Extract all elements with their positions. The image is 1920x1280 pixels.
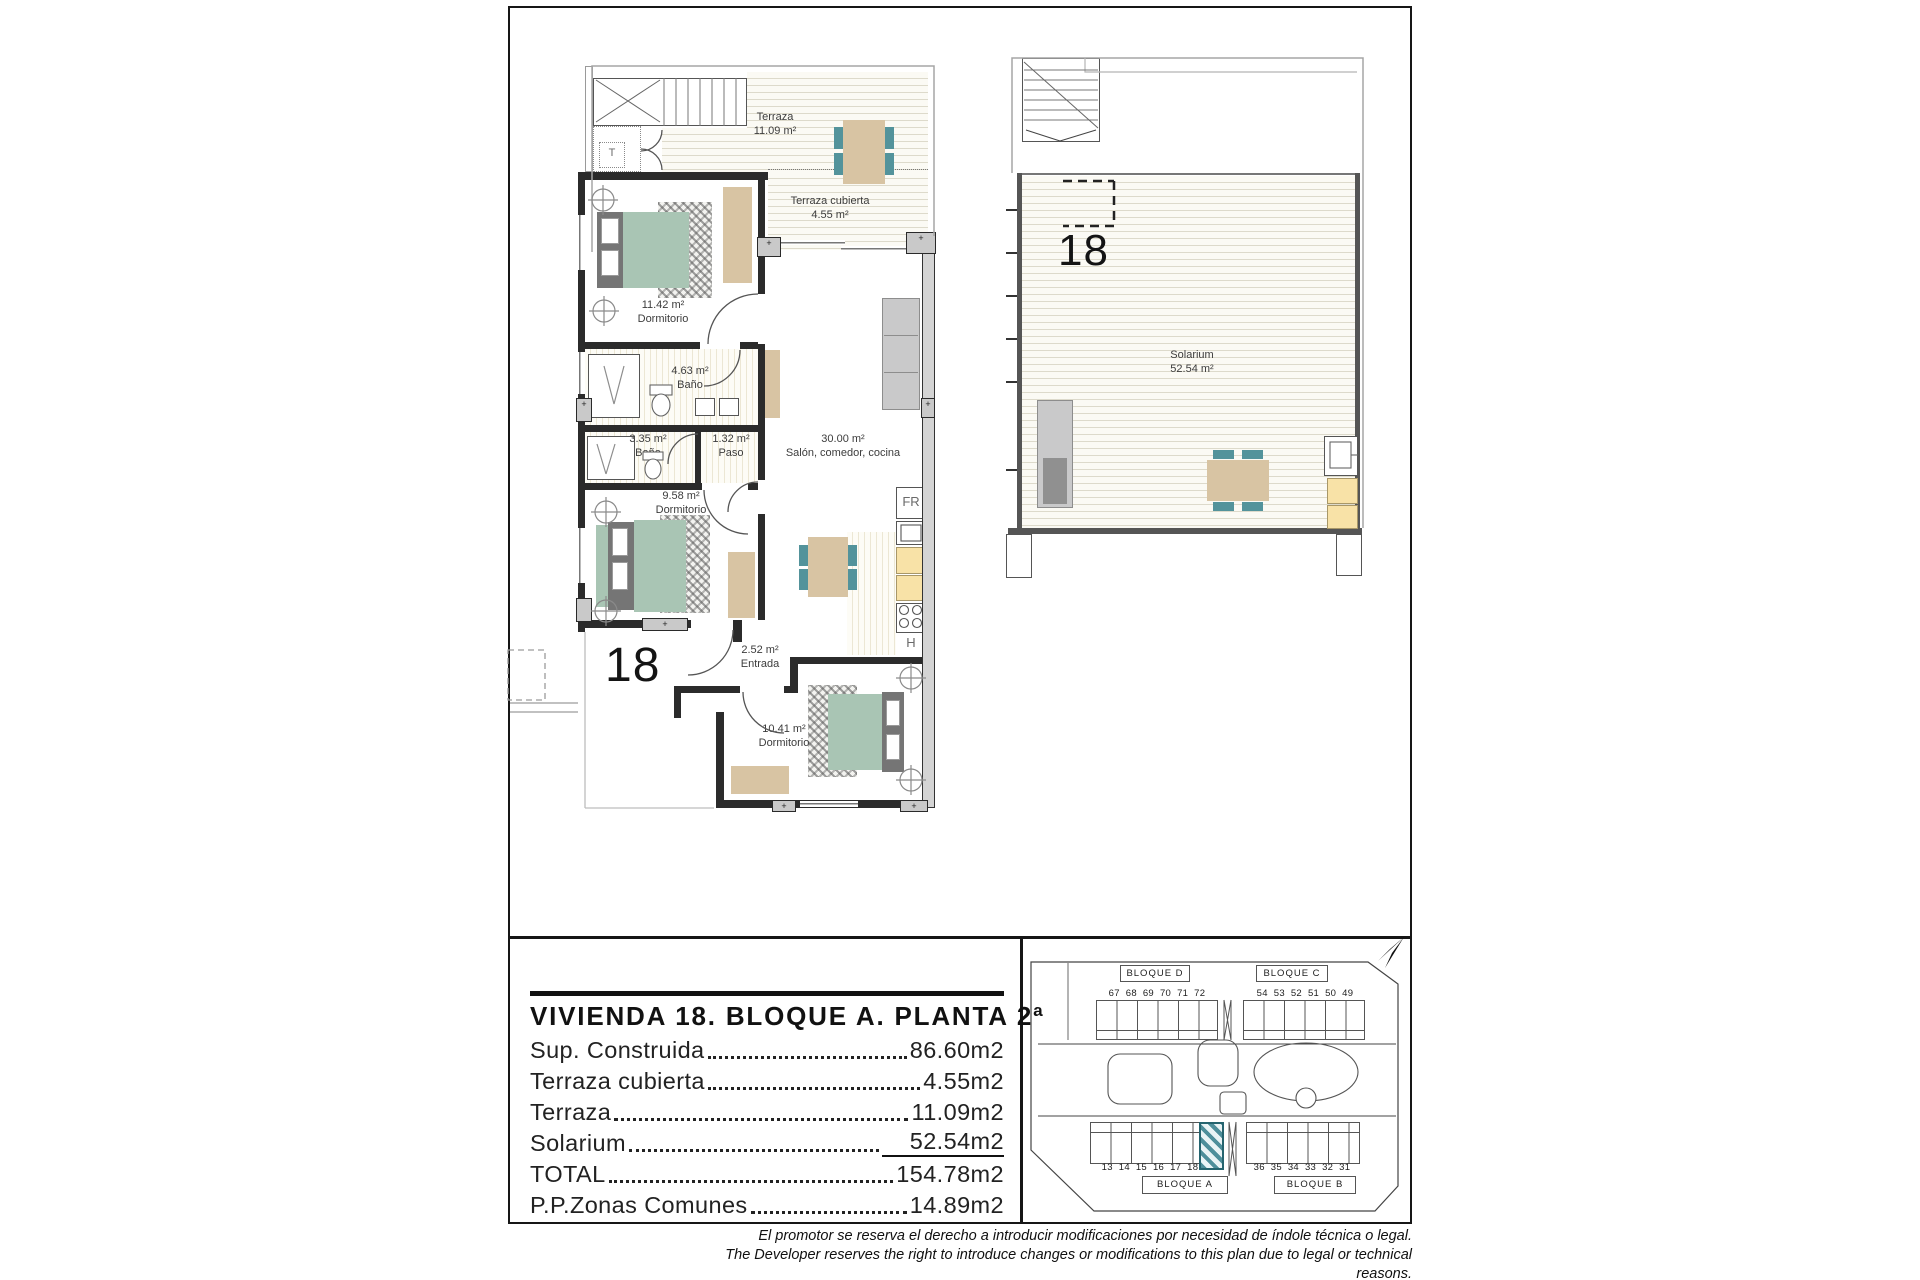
terrace-parapet xyxy=(585,66,593,172)
room-label-terraza-cubierta: Terraza cubierta 4.55 m² xyxy=(770,194,890,223)
site-units-block-c: 54 53 52 51 50 49 xyxy=(1246,988,1364,999)
legend-value: 14.89m2 xyxy=(910,1192,1004,1219)
legend-table: Sup. Construida 86.60m2 Terraza cubierta… xyxy=(530,1033,1004,1219)
legend-value-underlined: 52.54m2 xyxy=(882,1128,1004,1157)
bedroom3-pillow xyxy=(886,734,900,760)
room-label-paso: 1.32 m² Paso xyxy=(700,432,762,461)
solarium-left-wall xyxy=(1017,173,1022,528)
pillar: + xyxy=(921,398,935,418)
wall-segment xyxy=(674,686,681,718)
legend-dots xyxy=(629,1149,879,1152)
dining-table xyxy=(808,537,848,597)
wall-segment xyxy=(733,620,742,642)
room-area: 10.41 m² xyxy=(748,722,820,736)
disclaimer-en: The Developer reserves the right to intr… xyxy=(700,1246,1412,1280)
room-name: Entrada xyxy=(728,657,792,671)
divider-horizontal xyxy=(508,936,1412,939)
wall-segment xyxy=(790,657,935,664)
sink xyxy=(719,398,739,416)
room-area: 3.35 m² xyxy=(606,432,690,446)
bedroom1-pillow xyxy=(601,218,619,244)
sofa-cushion-line xyxy=(884,335,918,336)
room-area: 11.09 m² xyxy=(720,124,830,138)
shower xyxy=(588,354,640,418)
site-units-block-d: 67 68 69 70 71 72 xyxy=(1098,988,1216,999)
sink xyxy=(695,398,715,416)
legend-row: Terraza cubierta 4.55m2 xyxy=(530,1064,1004,1095)
sideboard xyxy=(764,350,780,418)
site-porch-line xyxy=(1243,1030,1365,1031)
legend-dots xyxy=(609,1180,894,1183)
site-houses-block-c xyxy=(1243,1000,1365,1040)
room-name: Terraza xyxy=(720,110,830,124)
site-block-label-b: BLOQUE B xyxy=(1274,1176,1356,1194)
unit-number-main: 18 xyxy=(605,638,660,693)
site-houses-block-a xyxy=(1090,1122,1216,1164)
site-houses-block-b xyxy=(1246,1122,1360,1164)
room-area: 30.00 m² xyxy=(780,432,906,446)
bedroom2-bed xyxy=(634,520,686,612)
room-name: Salón, comedor, cocina xyxy=(780,446,906,460)
stairs-label: T xyxy=(599,147,625,159)
legend-label: Sup. Construida xyxy=(530,1037,705,1064)
room-area: 11.42 m² xyxy=(618,298,708,312)
dining-chair xyxy=(799,545,808,566)
site-porch-line xyxy=(1246,1132,1360,1133)
legend-label: Solarium xyxy=(530,1130,626,1157)
room-area: 2.52 m² xyxy=(728,643,792,657)
solarium-lounger-seat xyxy=(1043,458,1067,504)
site-porch-line xyxy=(1090,1132,1216,1133)
wall-segment xyxy=(578,425,765,432)
room-name: Terraza cubierta xyxy=(770,194,890,208)
legend-dots xyxy=(708,1087,920,1090)
room-label-dormitorio1: 11.42 m² Dormitorio xyxy=(618,298,708,327)
pillar: + xyxy=(900,800,928,812)
solarium-column xyxy=(1336,534,1362,576)
pillar: + xyxy=(576,398,592,422)
bedroom2-bedside xyxy=(596,525,608,607)
disclaimer: El promotor se reserva el derecho a intr… xyxy=(700,1227,1412,1280)
legend-dots xyxy=(708,1056,907,1059)
room-area: 9.58 m² xyxy=(640,489,722,503)
solarium-column xyxy=(1006,534,1032,578)
legend-label: Terraza cubierta xyxy=(530,1068,705,1095)
site-block-label-d: BLOQUE D xyxy=(1120,965,1190,982)
sliding-door-glazing xyxy=(779,240,845,245)
room-label-terraza: Terraza 11.09 m² xyxy=(720,110,830,139)
room-name: Dormitorio xyxy=(748,736,820,750)
solarium-bottom-wall xyxy=(1008,528,1362,534)
solarium-chair xyxy=(1213,502,1234,511)
room-name: Paso xyxy=(700,446,762,460)
room-name: Solarium xyxy=(1152,348,1232,362)
terrace-chair xyxy=(885,153,894,175)
site-block-label-a: BLOQUE A xyxy=(1142,1176,1228,1194)
legend-label: TOTAL xyxy=(530,1161,606,1188)
bedroom1-pillow xyxy=(601,250,619,276)
legend-row: TOTAL 154.78m2 xyxy=(530,1157,1004,1188)
site-porch-line xyxy=(1096,1030,1218,1031)
legend-row: Solarium 52.54m2 xyxy=(530,1126,1004,1157)
room-label-bano1: 4.63 m² Baño xyxy=(650,364,730,393)
legend-value: 11.09m2 xyxy=(911,1099,1004,1126)
legend-row: Terraza 11.09m2 xyxy=(530,1095,1004,1126)
room-label-dormitorio3: 10.41 m² Dormitorio xyxy=(748,722,820,751)
door-opening xyxy=(758,480,765,514)
legend-title: VIVIENDA 18. BLOQUE A. PLANTA 2ª xyxy=(530,1001,1004,1032)
window xyxy=(577,352,585,394)
site-units-block-b: 36 35 34 33 32 31 xyxy=(1248,1162,1356,1173)
dining-chair xyxy=(799,569,808,590)
sofa-cushion-line xyxy=(884,372,918,373)
solarium-top-wall xyxy=(1022,173,1355,175)
room-area: 4.55 m² xyxy=(770,208,890,222)
terrace-chair xyxy=(885,127,894,149)
room-label-entrada: 2.52 m² Entrada xyxy=(728,643,792,672)
entry-mat xyxy=(731,766,789,794)
legend-label: P.P.Zonas Comunes xyxy=(530,1192,748,1219)
disclaimer-es: El promotor se reserva el derecho a intr… xyxy=(700,1227,1412,1246)
room-label-solarium: Solarium 52.54 m² xyxy=(1152,348,1232,377)
legend-dots xyxy=(614,1118,908,1121)
solarium-chair xyxy=(1213,450,1234,459)
pillar xyxy=(576,598,592,622)
legend-dots xyxy=(751,1211,907,1214)
bedroom3-pillow xyxy=(886,700,900,726)
unit-number-solarium: 18 xyxy=(1058,226,1109,276)
solarium-table xyxy=(1207,460,1269,501)
solarium-counter xyxy=(1327,478,1358,504)
terrace-table xyxy=(843,120,885,184)
solarium-chair xyxy=(1242,502,1263,511)
bedroom3-bed xyxy=(828,694,882,770)
window xyxy=(800,801,858,807)
legend-label: Terraza xyxy=(530,1099,611,1126)
bedroom1-wardrobe xyxy=(723,187,752,283)
room-area: 52.54 m² xyxy=(1152,362,1232,376)
site-units-block-a: 13 14 15 16 17 18 xyxy=(1094,1162,1206,1173)
legend-row: Sup. Construida 86.60m2 xyxy=(530,1033,1004,1064)
terrace-chair xyxy=(834,127,843,149)
sofa xyxy=(882,298,920,410)
room-area: 4.63 m² xyxy=(650,364,730,378)
terrace-chair xyxy=(834,153,843,175)
legend-rule xyxy=(530,991,1004,996)
bedroom2-pillow xyxy=(612,562,628,590)
stairs-solarium xyxy=(1022,58,1100,142)
bedroom1-bed xyxy=(623,212,689,288)
site-block-label-c: BLOQUE C xyxy=(1256,965,1328,982)
dining-chair xyxy=(848,545,857,566)
room-name: Dormitorio xyxy=(618,312,708,326)
plan-sheet: T FR H xyxy=(0,0,1920,1280)
pillar: + xyxy=(906,232,936,254)
legend-value: 4.55m2 xyxy=(923,1068,1004,1095)
legend-row: P.P.Zonas Comunes 14.89m2 xyxy=(530,1188,1004,1219)
room-name: Baño xyxy=(606,446,690,460)
solarium-counter xyxy=(1327,505,1358,529)
room-name: Dormitorio xyxy=(640,503,722,517)
legend-value: 154.78m2 xyxy=(896,1161,1004,1188)
window xyxy=(577,215,585,270)
party-wall xyxy=(922,250,935,808)
divider-vertical xyxy=(1020,936,1023,1222)
room-label-dormitorio2: 9.58 m² Dormitorio xyxy=(640,489,722,518)
dining-chair xyxy=(848,569,857,590)
pillar: + xyxy=(772,800,796,812)
wall-segment xyxy=(578,172,768,180)
door-opening xyxy=(758,294,765,344)
pillar: + xyxy=(642,618,688,631)
wall-segment xyxy=(716,712,724,808)
pillar: + xyxy=(757,237,781,257)
bedroom2-pillow xyxy=(612,528,628,556)
window xyxy=(577,528,585,583)
door-opening xyxy=(700,342,740,349)
bedroom2-wardrobe xyxy=(728,552,755,618)
solarium-chair xyxy=(1242,450,1263,459)
room-area: 1.32 m² xyxy=(700,432,762,446)
room-label-bano2: 3.35 m² Baño xyxy=(606,432,690,461)
door-opening xyxy=(740,686,784,693)
legend-value: 86.60m2 xyxy=(910,1037,1004,1064)
solarium-sink xyxy=(1324,436,1358,476)
site-houses-block-d xyxy=(1096,1000,1218,1040)
room-label-salon: 30.00 m² Salón, comedor, cocina xyxy=(780,432,906,461)
room-name: Baño xyxy=(650,378,730,392)
sliding-door-glazing xyxy=(841,246,907,251)
